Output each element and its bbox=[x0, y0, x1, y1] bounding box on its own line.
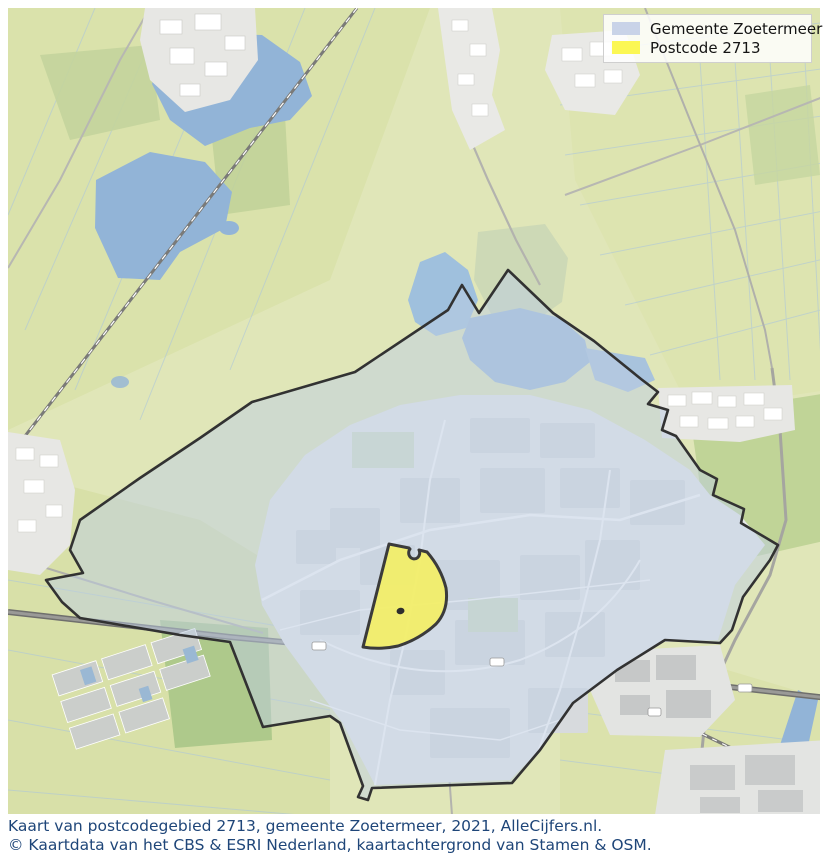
caption-line-1: Kaart van postcodegebied 2713, gemeente … bbox=[8, 817, 820, 836]
caption: Kaart van postcodegebied 2713, gemeente … bbox=[8, 817, 820, 855]
caption-line-2: © Kaartdata van het CBS & ESRI Nederland… bbox=[8, 836, 820, 855]
legend-label-gemeente: Gemeente Zoetermeer bbox=[650, 20, 822, 38]
legend-swatch-gemeente bbox=[612, 22, 640, 35]
legend-label-postcode: Postcode 2713 bbox=[650, 39, 761, 57]
map-figure bbox=[8, 8, 820, 814]
legend-item-postcode: Postcode 2713 bbox=[612, 38, 803, 57]
page: { "legend": { "items": [ { "label": "Gem… bbox=[0, 0, 828, 861]
map-canvas bbox=[8, 8, 820, 814]
legend-swatch-postcode bbox=[612, 41, 640, 54]
legend: Gemeente Zoetermeer Postcode 2713 bbox=[603, 14, 812, 63]
legend-item-gemeente: Gemeente Zoetermeer bbox=[612, 19, 803, 38]
